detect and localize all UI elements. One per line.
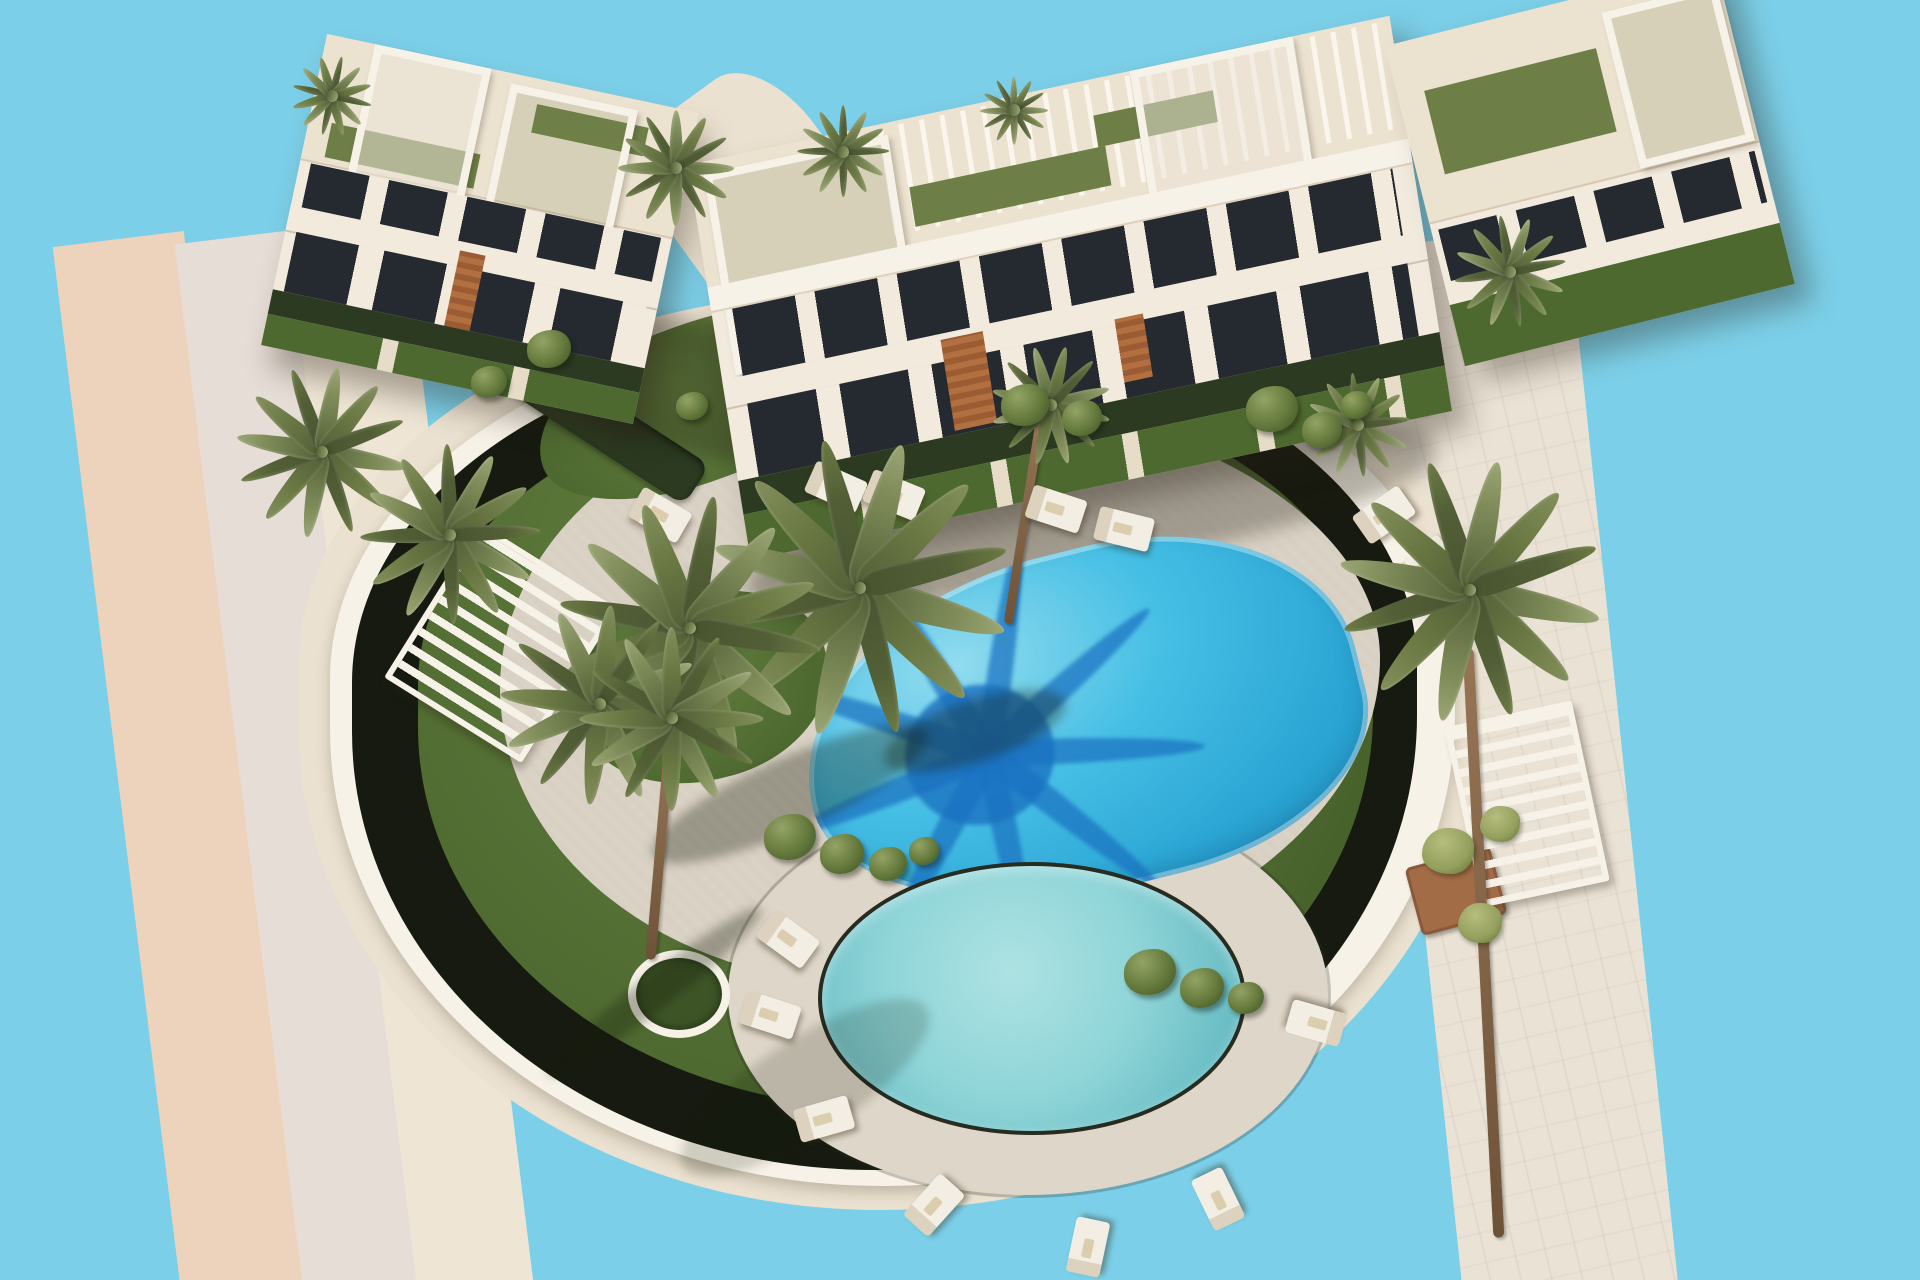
aerial-render: [0, 0, 1920, 1280]
palm-crown-center: [1008, 104, 1020, 116]
grass-tuft: [1480, 806, 1520, 842]
grass-tuft: [1458, 903, 1502, 943]
sun-lounger: [1066, 1216, 1111, 1278]
grass-tuft: [1422, 828, 1474, 874]
palm-crown-center: [670, 162, 682, 174]
sun-lounger: [1190, 1166, 1245, 1231]
